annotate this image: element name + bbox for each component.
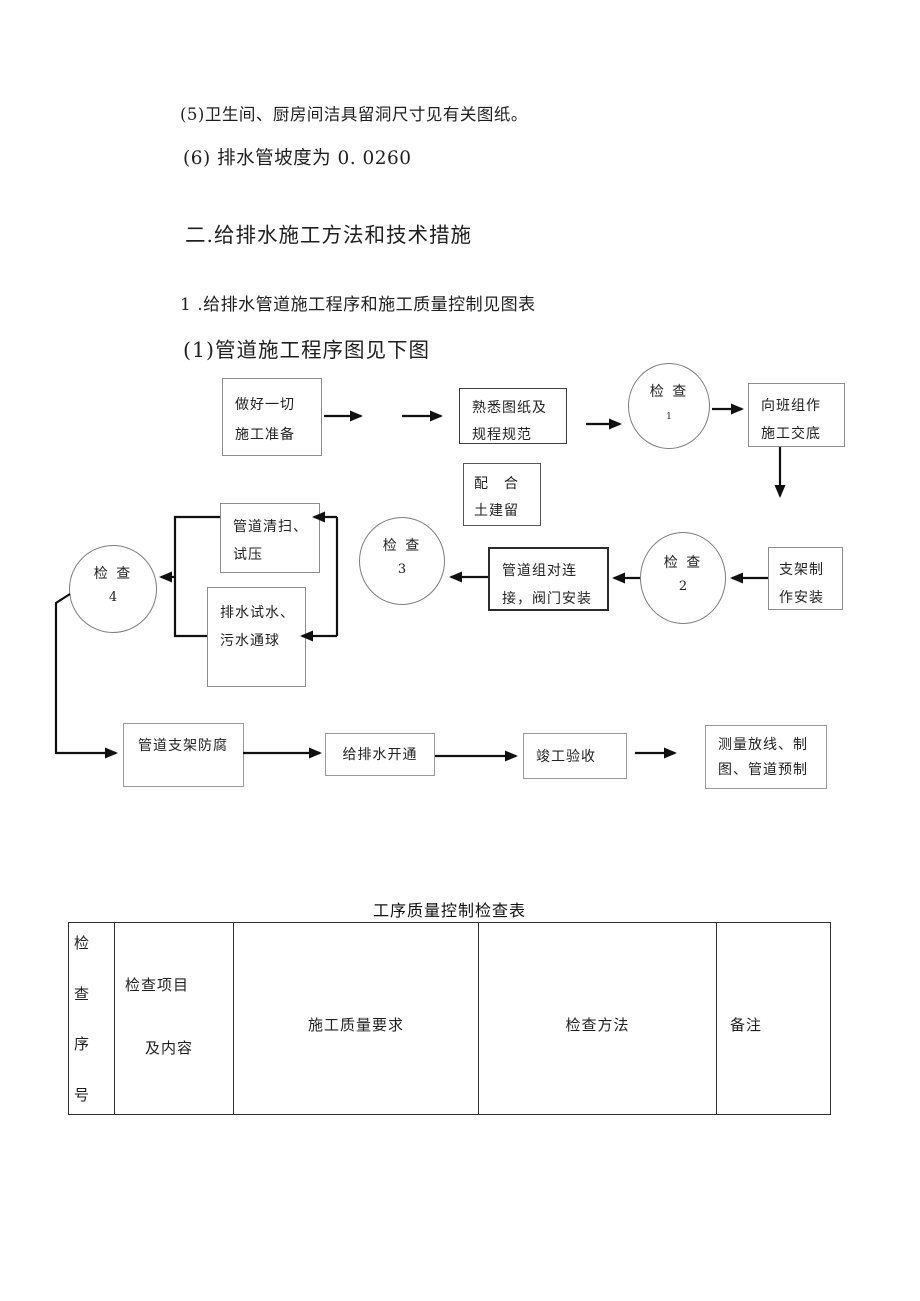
flowchart-box-completion-acceptance: 竣工验收	[523, 733, 627, 779]
flowchart-circle-check4: 检 查 4	[69, 545, 157, 633]
vertical-char: 号	[74, 1084, 114, 1105]
figure-heading: (1)管道施工程序图见下图	[183, 333, 430, 363]
scanned-document-page: { "document": { "item5": "(5)卫生间、厨房间洁具留洞…	[0, 0, 920, 1301]
table-header-check-item: 检查项目 及内容	[115, 923, 234, 1114]
circle-text: 检 查	[94, 567, 132, 582]
header-text-line: 检查项目	[115, 974, 233, 995]
paragraph-item-6: (6) 排水管坡度为 0. 0260	[183, 144, 412, 170]
flowchart-circle-check1: 检 查 1	[628, 363, 710, 449]
table-title: 工序质量控制检查表	[68, 897, 831, 921]
circle-text: 检 查	[650, 385, 688, 400]
box-text-line: 施工准备	[235, 420, 317, 450]
box-text-line: 配 合	[474, 471, 536, 498]
flowchart-box-team-briefing: 向班组作 施工交底	[748, 383, 845, 447]
header-text-line: 及内容	[115, 1037, 233, 1058]
circle-number: 1	[666, 411, 672, 424]
box-text-line: 施工交底	[761, 420, 840, 448]
vertical-char: 检	[74, 932, 114, 953]
box-text-line: 作安装	[779, 584, 838, 612]
flowchart-box-prepare: 做好一切 施工准备	[222, 378, 322, 456]
subsection-heading: 1 .给排水管道施工程序和施工质量控制见图表	[180, 290, 536, 315]
box-text-line: 管道支架防腐	[138, 732, 239, 760]
box-text-line: 规程规范	[472, 422, 562, 449]
section-heading: 二.给排水施工方法和技术措施	[185, 218, 472, 248]
box-text-line: 测量放线、制	[718, 733, 822, 758]
flowchart-circle-check2: 检 查 2	[640, 532, 726, 624]
flowchart-box-water-opening: 给排水开通	[325, 733, 435, 776]
circle-number: 2	[679, 580, 687, 593]
box-text-line: 竣工验收	[536, 743, 622, 771]
table-header-remarks: 备注	[717, 923, 830, 1114]
circle-text: 检 查	[383, 539, 421, 554]
vertical-char: 序	[74, 1033, 114, 1054]
flowchart-box-survey-prefab: 测量放线、制 图、管道预制	[705, 725, 827, 789]
box-text-line: 熟悉图纸及	[472, 395, 562, 422]
box-text-line: 土建留	[474, 498, 536, 525]
flowchart-box-pipe-cleaning: 管道清扫、 试压	[220, 503, 320, 573]
circle-text: 检 查	[664, 556, 702, 571]
flowchart-box-support-anticorrosion: 管道支架防腐	[123, 723, 244, 787]
table-header-sequence-no: 检 查 序 号	[69, 923, 115, 1114]
flowchart-box-support-fabrication: 支架制 作安装	[768, 547, 843, 610]
table-header-check-method: 检查方法	[479, 923, 717, 1114]
box-text-line: 接，阀门安装	[502, 585, 603, 613]
box-text-line: 支架制	[779, 556, 838, 584]
circle-number: 3	[398, 563, 406, 576]
flowchart-circle-check3: 检 查 3	[359, 517, 445, 605]
vertical-char: 查	[74, 983, 114, 1004]
paragraph-item-5: (5)卫生间、厨房间洁具留洞尺寸见有关图纸。	[180, 101, 528, 125]
flowchart-box-drain-test: 排水试水、 污水通球	[207, 587, 306, 687]
table-header-quality-requirement: 施工质量要求	[234, 923, 479, 1114]
box-text-line: 给排水开通	[343, 741, 418, 769]
flowchart-box-pipe-assembly: 管道组对连 接，阀门安装	[488, 547, 609, 611]
quality-check-table: 检 查 序 号 检查项目 及内容 施工质量要求 检查方法 备注	[68, 922, 831, 1115]
circle-number: 4	[109, 591, 117, 604]
box-text-line: 排水试水、	[220, 599, 301, 627]
box-text-line: 做好一切	[235, 390, 317, 420]
box-text-line: 图、管道预制	[718, 758, 822, 783]
box-text-line: 管道组对连	[502, 557, 603, 585]
box-text-line: 试压	[233, 541, 315, 569]
box-text-line: 污水通球	[220, 627, 301, 655]
flowchart-box-civil-reserve: 配 合 土建留	[463, 463, 541, 526]
flowchart-box-study-drawings: 熟悉图纸及 规程规范	[459, 388, 567, 444]
box-text-line: 向班组作	[761, 392, 840, 420]
box-text-line: 管道清扫、	[233, 513, 315, 541]
